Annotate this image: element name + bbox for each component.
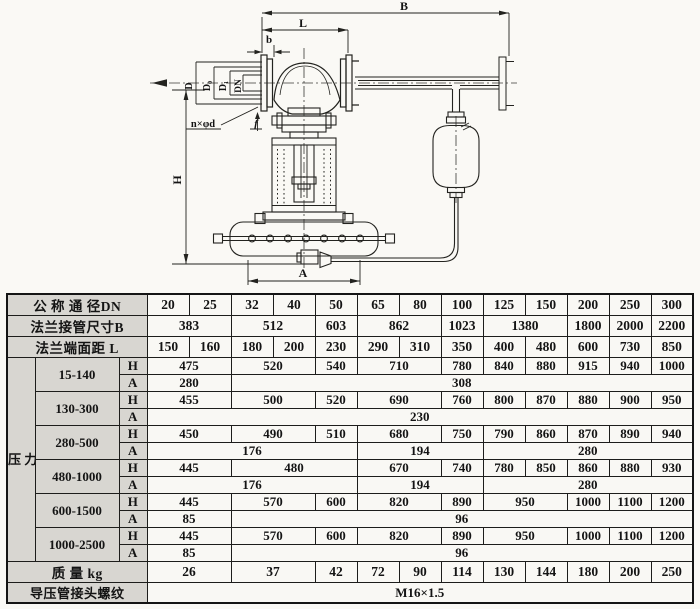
spec-value-cell: 880: [567, 392, 609, 409]
spec-label-cell: H: [119, 528, 147, 545]
spec-value-cell: 710: [357, 358, 441, 375]
dim-label-bolt-spec: n×φd: [191, 119, 215, 130]
spec-value-cell: 310: [399, 337, 441, 358]
spec-value-cell: 862: [357, 316, 441, 337]
spec-value-cell: 160: [189, 337, 231, 358]
spec-value-cell: 1380: [483, 316, 567, 337]
spec-value-cell: 26: [147, 562, 231, 583]
spec-value-cell: 940: [651, 426, 693, 443]
table-row: 法兰端面距 L150160180200230290310350400480600…: [7, 337, 693, 358]
spec-label-cell: 280-500: [35, 426, 119, 460]
spec-value-cell: 1800: [567, 316, 609, 337]
spec-value-cell: 890: [609, 426, 651, 443]
spec-table-section: 公 称 通 径DN2025324050658010012515020025030…: [6, 293, 694, 604]
spec-value-cell: 400: [483, 337, 525, 358]
spec-value-cell: 290: [357, 337, 399, 358]
spec-value-cell: 230: [147, 409, 693, 426]
spec-value-cell: 880: [525, 358, 567, 375]
spec-value-cell: 150: [147, 337, 189, 358]
spec-value-cell: 2200: [651, 316, 693, 337]
spec-value-cell: 950: [651, 392, 693, 409]
spec-value-cell: 880: [609, 460, 651, 477]
table-row: 法兰接管尺寸B38351260386210231380180020002200: [7, 316, 693, 337]
spec-value-cell: 350: [441, 337, 483, 358]
spec-value-cell: 790: [483, 426, 525, 443]
spec-value-cell: 840: [483, 358, 525, 375]
spec-value-cell: 250: [651, 562, 693, 583]
spec-value-cell: 65: [357, 294, 399, 316]
spec-value-cell: 800: [483, 392, 525, 409]
spec-value-cell: 570: [231, 494, 315, 511]
spec-value-cell: 730: [609, 337, 651, 358]
dimension-labels: B L b D D₀ D₁ DN n×φd f H A: [170, 0, 408, 280]
table-row: 导压管接头螺纹M16×1.5: [7, 583, 693, 604]
spec-value-cell: 475: [147, 358, 231, 375]
spec-label-cell: A: [119, 511, 147, 528]
table-row: 公 称 通 径DN2025324050658010012515020025030…: [7, 294, 693, 316]
spec-value-cell: 200: [567, 294, 609, 316]
spec-value-cell: 80: [399, 294, 441, 316]
spec-value-cell: 690: [357, 392, 441, 409]
spec-label-cell: 压 力 调 节 范 围 KPa: [7, 358, 35, 562]
spec-table-body: 公 称 通 径DN2025324050658010012515020025030…: [7, 294, 693, 603]
spec-value-cell: 870: [567, 426, 609, 443]
spec-value-cell: 860: [525, 426, 567, 443]
spec-label-cell: H: [119, 494, 147, 511]
spec-value-cell: 445: [147, 528, 231, 545]
outlet-pipe: [355, 57, 514, 110]
spec-value-cell: 670: [357, 460, 441, 477]
spec-value-cell: 42: [315, 562, 357, 583]
dim-label-b: b: [266, 34, 272, 46]
spec-value-cell: 450: [147, 426, 231, 443]
spec-value-cell: 520: [315, 392, 357, 409]
spec-value-cell: 930: [651, 460, 693, 477]
spec-value-cell: 180: [567, 562, 609, 583]
spec-label-cell: A: [119, 477, 147, 494]
spec-label-cell: A: [119, 375, 147, 392]
spec-value-cell: 445: [147, 460, 231, 477]
spec-value-cell: 200: [609, 562, 651, 583]
table-row: 1000-2500H445570600820890950100011001200: [7, 528, 693, 545]
spec-value-cell: 890: [441, 528, 483, 545]
table-row: 600-1500H445570600820890950100011001200: [7, 494, 693, 511]
page: { "diagram": { "labels": { "B": "B", "L"…: [0, 0, 700, 609]
spec-value-cell: 680: [357, 426, 441, 443]
spec-value-cell: 600: [567, 337, 609, 358]
spec-value-cell: 915: [567, 358, 609, 375]
spec-label-cell: 1000-2500: [35, 528, 119, 562]
dim-label-DN: DN: [234, 79, 244, 93]
spec-value-cell: 25: [189, 294, 231, 316]
table-row: 压 力 调 节 范 围 KPa15-140H475520540710780840…: [7, 358, 693, 375]
spec-label-cell: 15-140: [35, 358, 119, 392]
spec-value-cell: 850: [651, 337, 693, 358]
dim-label-f: f: [254, 118, 259, 130]
spec-value-cell: 144: [525, 562, 567, 583]
spec-label-cell: A: [119, 443, 147, 460]
spec-value-cell: 2000: [609, 316, 651, 337]
spec-value-cell: 603: [315, 316, 357, 337]
spec-value-cell: 90: [399, 562, 441, 583]
spec-value-cell: 280: [147, 375, 231, 392]
table-row: 质 量 kg2637427290114130144180200250: [7, 562, 693, 583]
spec-value-cell: 308: [231, 375, 693, 392]
spec-value-cell: 780: [441, 358, 483, 375]
spec-value-cell: 230: [315, 337, 357, 358]
spec-value-cell: 512: [231, 316, 315, 337]
spec-value-cell: 130: [483, 562, 525, 583]
flow-arrow: [152, 79, 167, 87]
spec-value-cell: 1200: [651, 528, 693, 545]
spec-label-cell: H: [119, 358, 147, 375]
spec-value-cell: 1200: [651, 494, 693, 511]
table-row: 130-300H455500520690760800870880900950: [7, 392, 693, 409]
table-row: 280-500H450490510680750790860870890940: [7, 426, 693, 443]
spec-value-cell: 600: [315, 494, 357, 511]
spec-value-cell: 1000: [567, 494, 609, 511]
spec-value-cell: 114: [441, 562, 483, 583]
spec-value-cell: 455: [147, 392, 231, 409]
spec-label-cell: H: [119, 392, 147, 409]
spec-value-cell: 1023: [441, 316, 483, 337]
spec-value-cell: 194: [357, 443, 483, 460]
dim-label-B: B: [400, 0, 408, 13]
spec-value-cell: 20: [147, 294, 189, 316]
spec-value-cell: 510: [315, 426, 357, 443]
spec-value-cell: 870: [525, 392, 567, 409]
spec-value-cell: 300: [651, 294, 693, 316]
spec-value-cell: 1000: [651, 358, 693, 375]
spec-label-cell: A: [119, 409, 147, 426]
spec-value-cell: 740: [441, 460, 483, 477]
dim-label-L: L: [299, 16, 307, 30]
spec-value-cell: 72: [357, 562, 399, 583]
spec-value-cell: 37: [231, 562, 315, 583]
spec-label-cell: 法兰端面距 L: [7, 337, 147, 358]
spec-value-cell: 940: [609, 358, 651, 375]
spec-value-cell: 100: [441, 294, 483, 316]
spec-label-cell: 130-300: [35, 392, 119, 426]
spec-label-cell: A: [119, 545, 147, 562]
spec-value-cell: 194: [357, 477, 483, 494]
spec-value-cell: 860: [567, 460, 609, 477]
spec-value-cell: 383: [147, 316, 231, 337]
spec-value-cell: 760: [441, 392, 483, 409]
spec-value-cell: 850: [525, 460, 567, 477]
spec-label-cell: 公 称 通 径DN: [7, 294, 147, 316]
spec-value-cell: 125: [483, 294, 525, 316]
spec-label-cell: H: [119, 460, 147, 477]
spec-value-cell: 820: [357, 528, 441, 545]
spec-label-cell: 600-1500: [35, 494, 119, 528]
spec-value-cell: 280: [483, 477, 693, 494]
spec-value-cell: 445: [147, 494, 231, 511]
spec-value-cell: 780: [483, 460, 525, 477]
spec-value-cell: 600: [315, 528, 357, 545]
spec-value-cell: 540: [315, 358, 357, 375]
valve-spec-table: 公 称 通 径DN2025324050658010012515020025030…: [6, 293, 694, 604]
spec-value-cell: 500: [231, 392, 315, 409]
spec-value-cell: 40: [273, 294, 315, 316]
spec-value-cell: 85: [147, 511, 231, 528]
spec-value-cell: 280: [483, 443, 693, 460]
spec-value-cell: 1100: [609, 494, 651, 511]
spec-value-cell: 750: [441, 426, 483, 443]
dim-label-D: D: [184, 82, 195, 89]
spec-label-cell: 480-1000: [35, 460, 119, 494]
spec-value-cell: 1100: [609, 528, 651, 545]
spec-value-cell: 176: [147, 477, 357, 494]
table-row: 480-1000H445480670740780850860880930: [7, 460, 693, 477]
spec-label-cell: 导压管接头螺纹: [7, 583, 147, 604]
valve-technical-drawing: B L b D D₀ D₁ DN n×φd f H A: [0, 0, 700, 293]
spec-value-cell: 250: [609, 294, 651, 316]
spec-value-cell: 96: [231, 545, 693, 562]
spec-value-cell: 950: [483, 528, 567, 545]
spec-label-cell: 质 量 kg: [7, 562, 147, 583]
spec-value-cell: 490: [231, 426, 315, 443]
dim-label-D1: D₁: [218, 81, 229, 91]
dim-label-H: H: [170, 175, 184, 185]
spec-value-cell: 176: [147, 443, 357, 460]
spec-value-cell: 50: [315, 294, 357, 316]
spec-value-cell: 150: [525, 294, 567, 316]
spec-value-cell: 480: [525, 337, 567, 358]
spec-value-cell: 1000: [567, 528, 609, 545]
dim-label-A: A: [299, 266, 308, 280]
spec-value-cell: 85: [147, 545, 231, 562]
spec-value-cell: 520: [231, 358, 315, 375]
spec-value-cell: M16×1.5: [147, 583, 693, 604]
spec-value-cell: 96: [231, 511, 693, 528]
spec-value-cell: 32: [231, 294, 273, 316]
valve-body: [261, 55, 359, 114]
spec-label-cell: H: [119, 426, 147, 443]
spec-value-cell: 820: [357, 494, 441, 511]
spec-value-cell: 200: [273, 337, 315, 358]
spec-value-cell: 480: [231, 460, 357, 477]
spec-value-cell: 890: [441, 494, 483, 511]
spec-value-cell: 180: [231, 337, 273, 358]
spec-label-cell: 法兰接管尺寸B: [7, 316, 147, 337]
spec-value-cell: 950: [483, 494, 567, 511]
dim-label-D0: D₀: [202, 81, 213, 91]
spec-value-cell: 900: [609, 392, 651, 409]
spec-value-cell: 570: [231, 528, 315, 545]
